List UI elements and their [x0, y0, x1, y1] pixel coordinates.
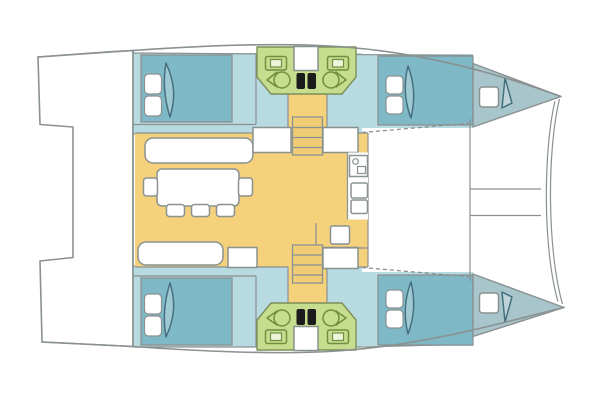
port-forward-cabin	[378, 56, 473, 125]
stool	[239, 178, 253, 196]
sink-basin	[333, 333, 344, 341]
shower-pan	[294, 47, 318, 71]
door-panel	[297, 73, 306, 89]
deck-hatch	[480, 293, 499, 313]
door-panel	[308, 309, 317, 325]
longitudinal-beam	[470, 189, 541, 216]
dining-table	[157, 169, 239, 206]
pillow	[145, 316, 162, 336]
galley-appliance	[351, 200, 368, 214]
stool	[217, 205, 235, 217]
deck-hatch	[480, 87, 499, 107]
shower-pan	[294, 327, 318, 351]
bow-bridle-inner	[546, 101, 558, 302]
cockpit-platform	[38, 51, 133, 347]
port-head	[257, 47, 356, 95]
salon-settee-port	[145, 138, 253, 163]
salon-settee-starboard	[138, 242, 223, 265]
nav-seat	[331, 226, 350, 244]
pillow	[145, 294, 162, 314]
door-panel	[308, 73, 317, 89]
pillow	[386, 290, 403, 308]
counter	[253, 128, 291, 153]
counter	[228, 248, 257, 268]
steps-frame	[293, 245, 323, 283]
foredeck	[470, 99, 563, 304]
sink-basin	[271, 60, 282, 68]
pillow	[145, 74, 162, 94]
starboard-forward-cabin	[378, 275, 473, 345]
stool	[167, 205, 185, 217]
steps-frame	[293, 117, 323, 155]
sink-basin	[333, 60, 344, 68]
stool	[144, 178, 158, 196]
floor-plan-drawing	[0, 0, 600, 400]
starboard-aft-cabin	[141, 278, 232, 345]
sink-basin	[271, 333, 282, 341]
galley-appliance	[351, 183, 368, 198]
door-panel	[297, 309, 306, 325]
galley-unit	[348, 153, 369, 220]
catamaran-floor-plan	[0, 0, 600, 400]
pillow	[386, 96, 403, 114]
stool	[192, 205, 210, 217]
counter	[323, 128, 358, 153]
pillow	[145, 96, 162, 116]
starboard-head	[257, 303, 356, 351]
companionway-steps-port	[293, 117, 323, 155]
companionway-steps-starboard	[293, 245, 323, 283]
counter	[323, 248, 358, 269]
port-aft-cabin	[141, 55, 232, 122]
pillow	[386, 76, 403, 94]
pillow	[386, 310, 403, 328]
